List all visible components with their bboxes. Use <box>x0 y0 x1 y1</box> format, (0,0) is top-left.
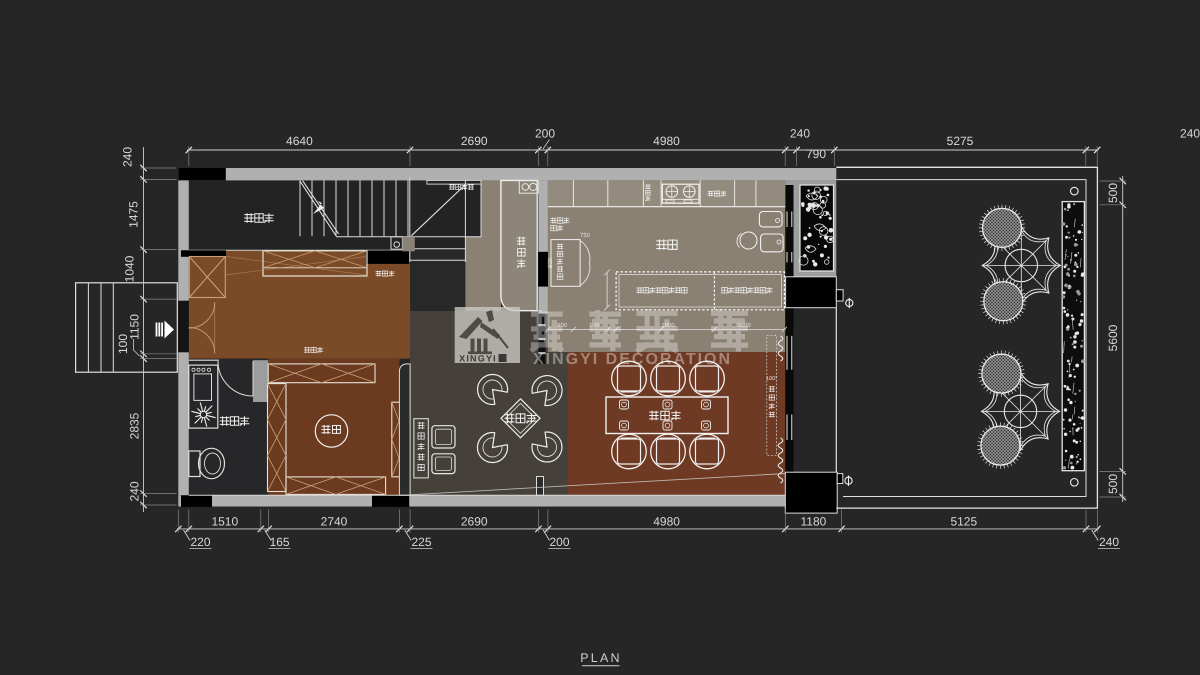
svg-text:500: 500 <box>1106 474 1120 494</box>
svg-text:4640: 4640 <box>286 134 313 148</box>
svg-text:5125: 5125 <box>950 515 977 529</box>
svg-text:2690: 2690 <box>461 134 488 148</box>
svg-text:220: 220 <box>190 535 210 549</box>
svg-text:1510: 1510 <box>211 515 238 529</box>
svg-text:5600: 5600 <box>1106 324 1120 351</box>
svg-text:XINGYI: XINGYI <box>459 354 497 364</box>
svg-text:1180: 1180 <box>800 515 826 529</box>
svg-text:2740: 2740 <box>321 515 348 529</box>
svg-text:240: 240 <box>790 127 810 141</box>
svg-text:2835: 2835 <box>128 412 142 439</box>
svg-text:200: 200 <box>549 535 569 549</box>
svg-text:500: 500 <box>1106 183 1120 203</box>
svg-text:165: 165 <box>270 535 290 549</box>
svg-text:PLAN: PLAN <box>580 651 621 665</box>
svg-text:2690: 2690 <box>461 515 488 529</box>
svg-text:4980: 4980 <box>653 134 680 148</box>
svg-text:240: 240 <box>1099 535 1119 549</box>
svg-text:1040: 1040 <box>123 255 137 282</box>
svg-text:790: 790 <box>806 147 826 161</box>
svg-text:240: 240 <box>128 481 142 501</box>
svg-text:100: 100 <box>116 334 130 354</box>
svg-text:100°: 100° <box>766 376 777 382</box>
svg-text:1475: 1475 <box>127 201 141 228</box>
svg-text:4980: 4980 <box>653 515 680 529</box>
svg-text:750: 750 <box>580 232 591 239</box>
svg-text:XINGYI DECORATION: XINGYI DECORATION <box>533 351 732 368</box>
svg-text:240: 240 <box>121 147 135 167</box>
svg-text:200: 200 <box>535 127 555 141</box>
svg-text:240: 240 <box>1180 127 1200 141</box>
svg-text:900: 900 <box>547 257 554 268</box>
svg-text:225: 225 <box>411 535 431 549</box>
svg-text:5275: 5275 <box>947 134 974 148</box>
